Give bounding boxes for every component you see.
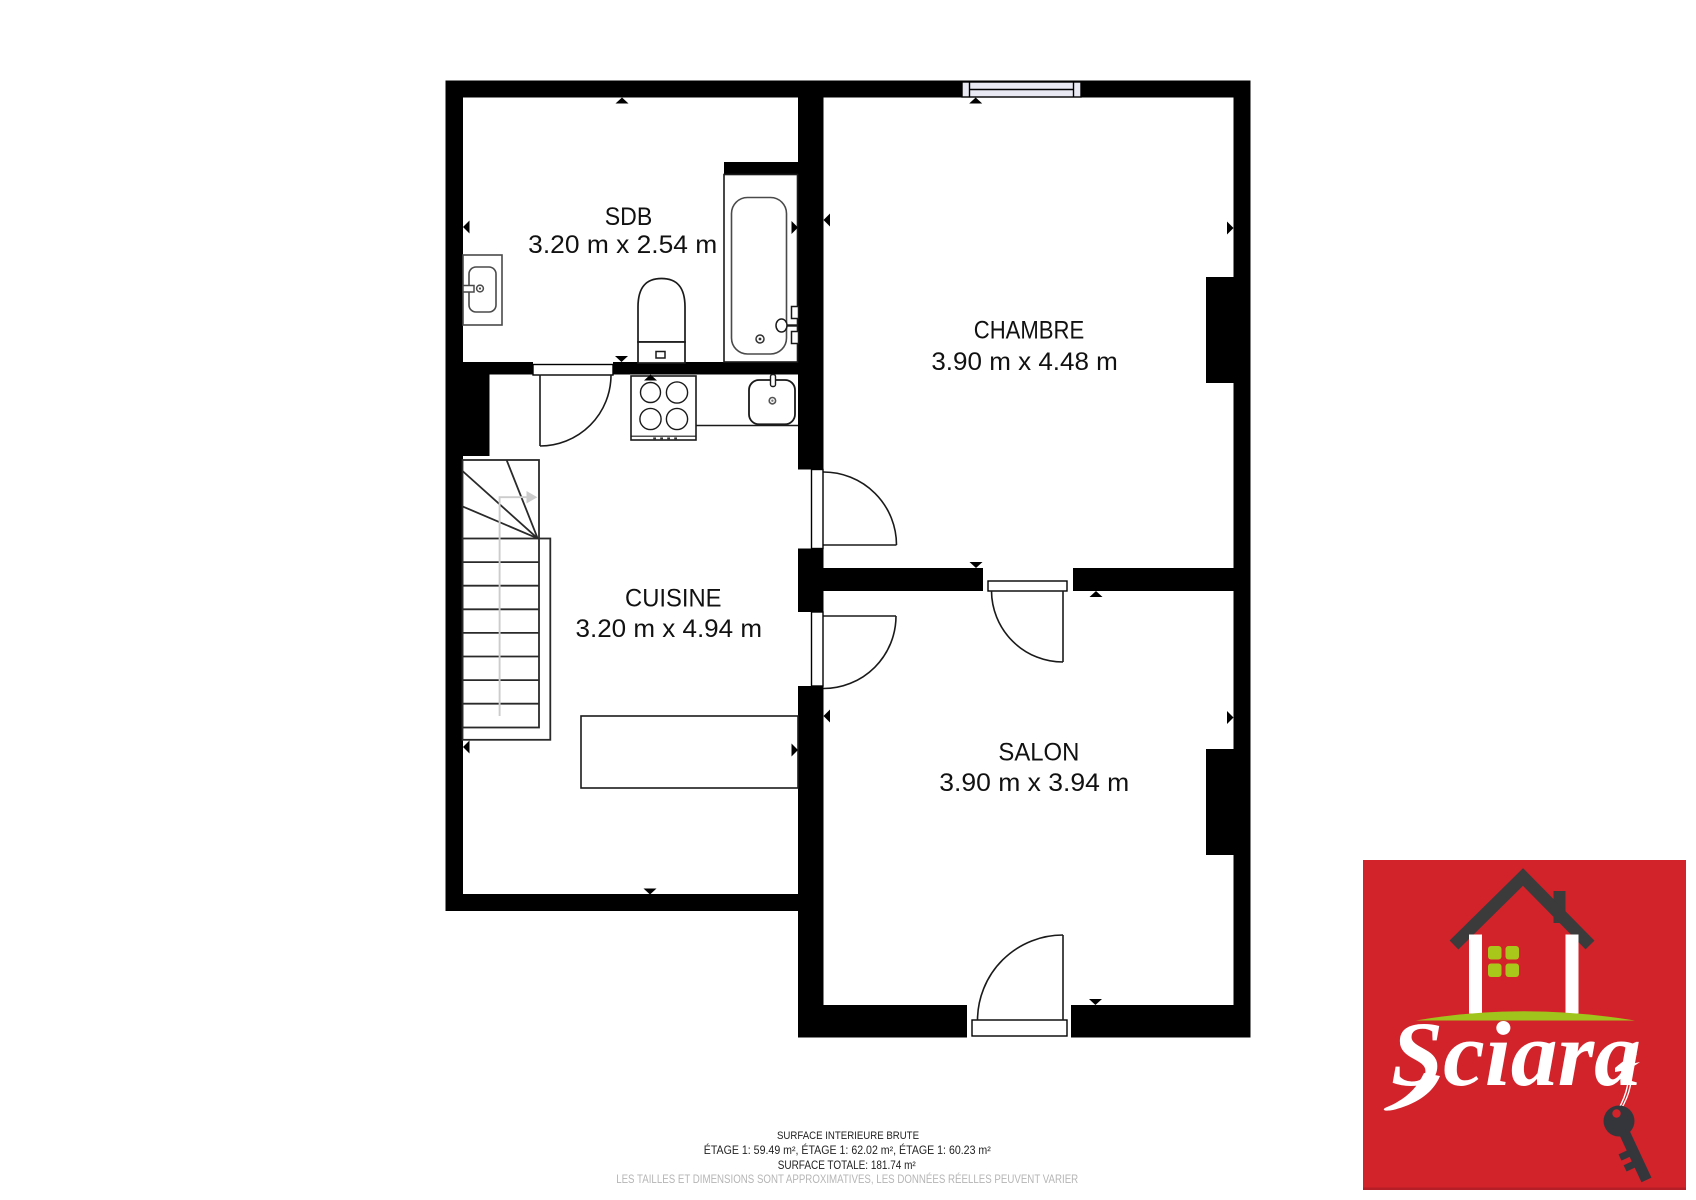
svg-text:LES TAILLES ET DIMENSIONS SONT: LES TAILLES ET DIMENSIONS SONT APPROXIMA… [616,1173,1078,1186]
svg-text:3.20 m x 2.54 m: 3.20 m x 2.54 m [528,231,717,259]
svg-text:SURFACE TOTALE: 181.74 m²: SURFACE TOTALE: 181.74 m² [778,1160,916,1172]
svg-text:3.20 m x 4.94 m: 3.20 m x 4.94 m [576,615,763,643]
svg-text:SDB: SDB [605,203,653,231]
svg-text:ÉTAGE 1: 59.49 m², ÉTAGE 1: 62: ÉTAGE 1: 59.49 m², ÉTAGE 1: 62.02 m², ÉT… [704,1144,991,1157]
svg-text:SALON: SALON [998,739,1079,767]
svg-text:3.90 m x 3.94 m: 3.90 m x 3.94 m [939,769,1129,797]
svg-text:CHAMBRE: CHAMBRE [974,317,1085,345]
svg-text:SURFACE INTERIEURE BRUTE: SURFACE INTERIEURE BRUTE [777,1130,919,1142]
svg-text:3.90 m x 4.48 m: 3.90 m x 4.48 m [931,348,1118,376]
svg-text:CUISINE: CUISINE [625,585,722,613]
